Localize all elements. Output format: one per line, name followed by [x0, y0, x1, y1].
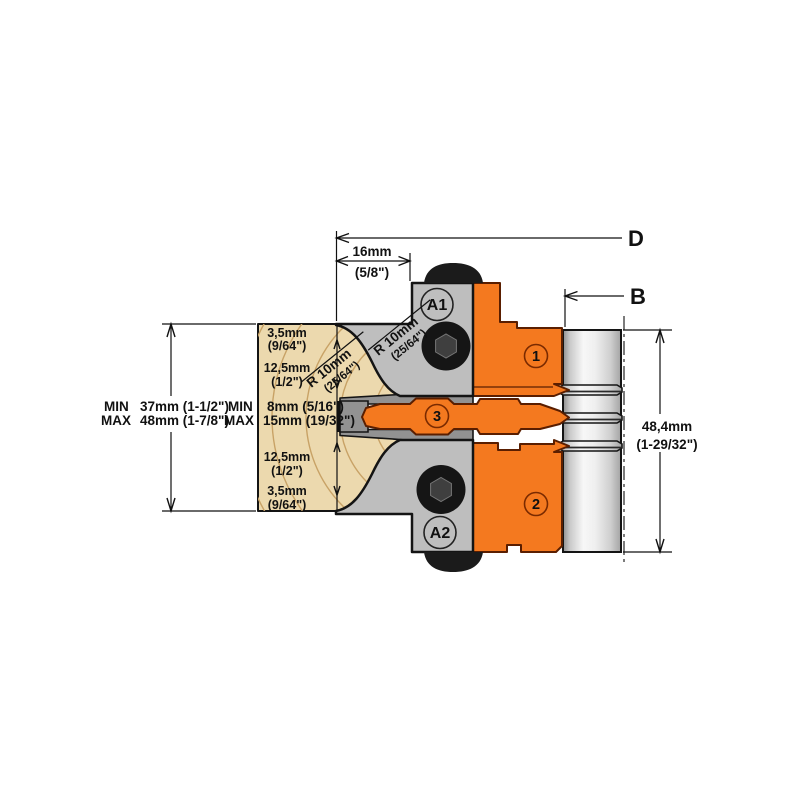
badge-knife-1-label: 1 — [532, 349, 540, 365]
knife-2 — [473, 440, 569, 552]
bolt-bottom — [424, 552, 483, 572]
cutterhead-diagram: A1 A2 1 2 3 D 16mm (5/8") B — [0, 0, 800, 800]
dim-shaft-height: 48,4mm (1-29/32") — [623, 330, 698, 552]
tongue-max-label: MAX — [224, 413, 254, 428]
stock-min-label: MIN — [104, 399, 129, 414]
tongue-max-value: 15mm (19/32") — [263, 413, 355, 428]
knife-1 — [473, 283, 569, 396]
profile-bottom-mid-in: (1/2") — [271, 464, 303, 478]
hex-screw-top — [422, 322, 471, 371]
tongue-min-label: MIN — [228, 399, 253, 414]
profile-top-small-mm: 3,5mm — [267, 326, 307, 340]
badge-knife-2-label: 2 — [532, 497, 540, 513]
tongue-min-value: 8mm (5/16") — [267, 399, 344, 414]
dim-tongue-minmax: MIN 8mm (5/16") MAX 15mm (19/32") — [224, 399, 355, 428]
stock-min-value: 37mm (1-1/2") — [140, 399, 229, 414]
stock-max-value: 48mm (1-7/8") — [140, 413, 229, 428]
dim-16mm: 16mm (5/8") — [337, 244, 411, 281]
dim-d-label: D — [628, 226, 644, 251]
badge-knife-3-label: 3 — [433, 409, 441, 425]
diagram-canvas: A1 A2 1 2 3 D 16mm (5/8") B — [0, 0, 800, 800]
dim-16mm-value: 16mm — [352, 244, 391, 259]
profile-bottom-mid-mm: 12,5mm — [264, 450, 311, 464]
dim-b-label: B — [630, 284, 646, 309]
dim-shaft-height-value: 48,4mm — [642, 419, 692, 434]
dim-16mm-inch: (5/8") — [355, 265, 389, 280]
profile-top-mid-mm: 12,5mm — [264, 361, 311, 375]
hex-screw-bottom — [417, 465, 466, 514]
dim-shaft-height-inch: (1-29/32") — [636, 437, 697, 452]
profile-bottom-small-in: (9/64") — [268, 498, 307, 512]
badge-a2-label: A2 — [430, 525, 451, 542]
profile-top-mid-in: (1/2") — [271, 375, 303, 389]
spindle-shaft — [558, 316, 624, 562]
stock-max-label: MAX — [101, 413, 131, 428]
profile-bottom-small-mm: 3,5mm — [267, 484, 307, 498]
profile-top-small-in: (9/64") — [268, 339, 307, 353]
dim-b: B — [565, 284, 646, 327]
bolt-top — [424, 263, 483, 283]
